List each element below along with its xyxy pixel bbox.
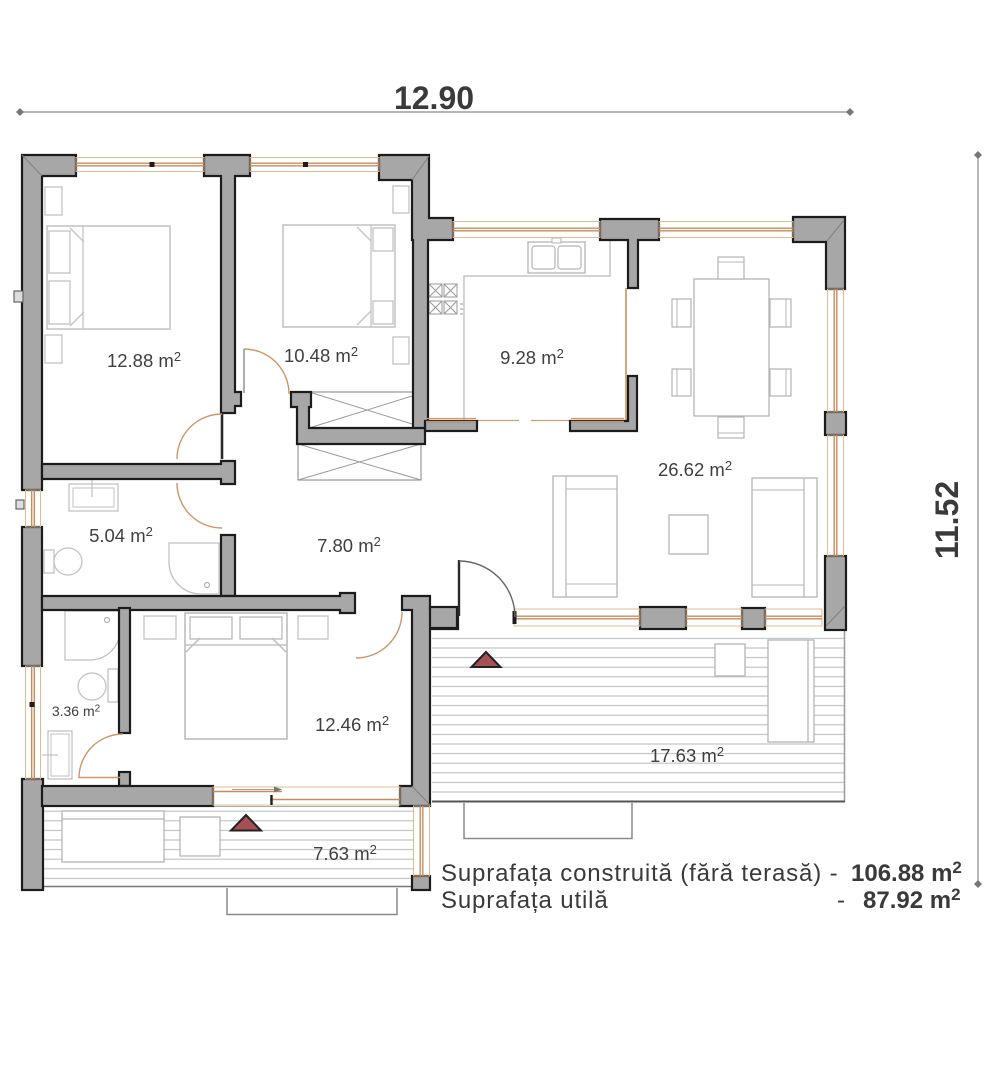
- svg-text:7.80 m2: 7.80 m2: [317, 534, 381, 556]
- svg-text:12.90: 12.90: [394, 80, 474, 116]
- svg-text:9.28 m2: 9.28 m2: [500, 346, 564, 368]
- svg-text:11.52: 11.52: [929, 481, 965, 559]
- svg-text:87.92 m2: 87.92 m2: [863, 885, 961, 914]
- svg-text:10.48 m2: 10.48 m2: [284, 344, 358, 366]
- svg-text:12.46 m2: 12.46 m2: [315, 713, 389, 735]
- svg-text:12.88 m2: 12.88 m2: [107, 349, 181, 371]
- svg-text:-: -: [837, 887, 845, 914]
- svg-text:Suprafața utilă: Suprafața utilă: [441, 887, 609, 914]
- svg-text:106.88 m2: 106.88 m2: [851, 858, 962, 887]
- svg-text:17.63 m2: 17.63 m2: [650, 744, 724, 766]
- svg-text:7.63 m2: 7.63 m2: [313, 842, 377, 864]
- svg-text:Suprafața construită (fără ter: Suprafața construită (fără terasă) -: [441, 860, 838, 887]
- svg-text:26.62 m2: 26.62 m2: [658, 458, 732, 480]
- svg-text:3.36 m2: 3.36 m2: [52, 703, 101, 719]
- svg-text:5.04 m2: 5.04 m2: [89, 524, 153, 546]
